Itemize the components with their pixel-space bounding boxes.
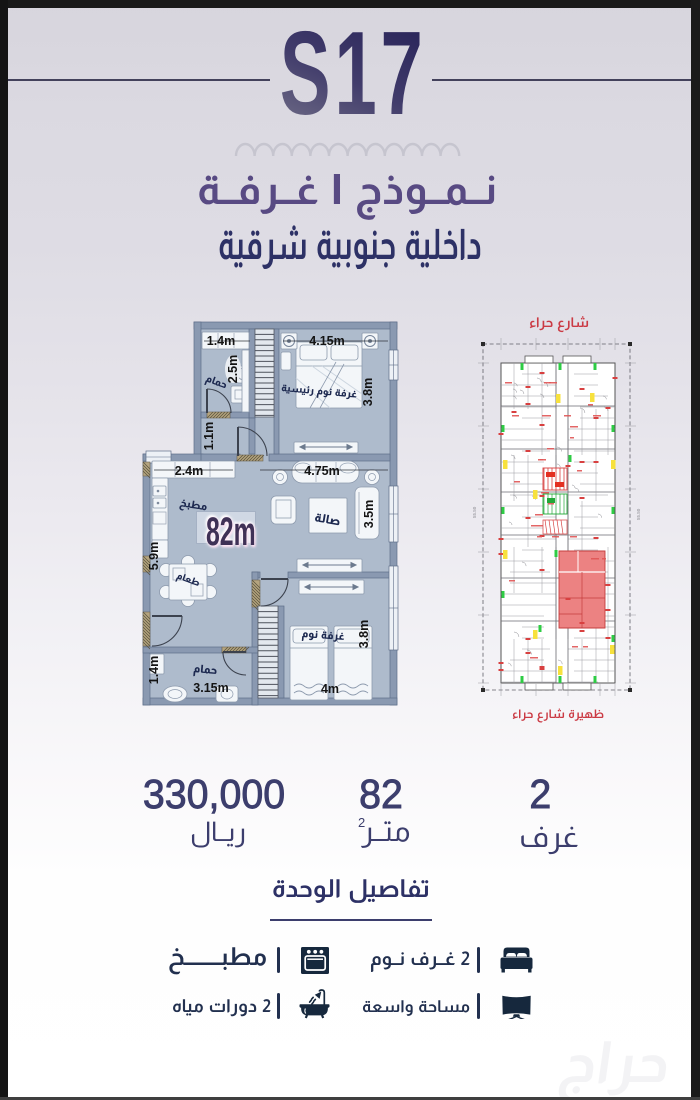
svg-text:4m: 4m xyxy=(321,682,339,696)
svg-text:1.4m: 1.4m xyxy=(147,656,161,685)
svg-text:2.4m: 2.4m xyxy=(175,464,204,478)
svg-text:3.5m: 3.5m xyxy=(362,500,376,529)
svg-text:3.8m: 3.8m xyxy=(357,620,371,649)
svg-text:1.1m: 1.1m xyxy=(202,422,216,451)
svg-text:2.5m: 2.5m xyxy=(226,355,240,384)
svg-text:3.8m: 3.8m xyxy=(361,378,375,407)
svg-text:4.75m: 4.75m xyxy=(304,464,339,478)
svg-text:55.50: 55.50 xyxy=(472,506,477,518)
svg-text:55.50: 55.50 xyxy=(636,508,641,520)
svg-text:5.9m: 5.9m xyxy=(147,542,161,571)
svg-text:3.15m: 3.15m xyxy=(193,681,228,695)
svg-text:1.4m: 1.4m xyxy=(207,334,236,348)
svg-text:4.15m: 4.15m xyxy=(309,334,344,348)
